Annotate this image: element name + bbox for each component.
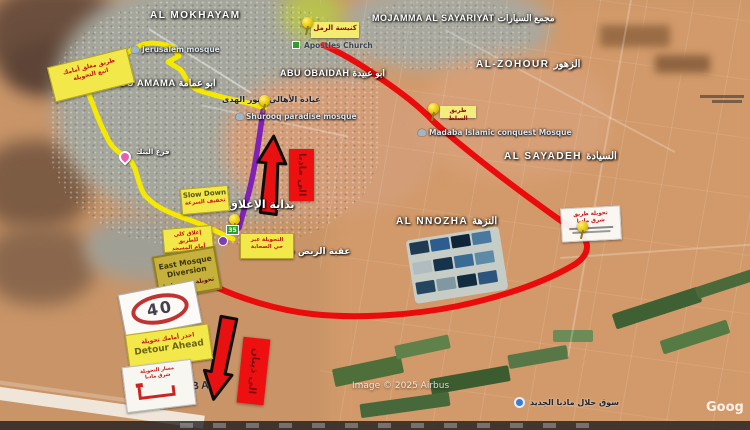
satellite-map-canvas[interactable]: AL MOKHAYAM MOJAMMA AL SAYARIYAT مجمع ال… <box>0 0 750 430</box>
church-pin[interactable] <box>302 17 313 28</box>
place-label-mokhayam: AL MOKHAYAM <box>150 10 241 21</box>
illegible-text-bar <box>700 95 744 98</box>
sign-notice-white: تحويلة طريق شرق مادبا <box>560 205 622 242</box>
illegible-text-bar <box>712 100 742 103</box>
poi-conquest-mosque[interactable]: Madaba Islamic conquest Mosque <box>429 128 572 137</box>
dark-patch <box>655 55 710 73</box>
status-bar-text-blur <box>180 423 600 428</box>
sign-diversion-diagram: مسار التحويلة شرق مادبا <box>121 359 196 413</box>
place-label-nnozha: AL NNOZHA النزهة <box>396 216 497 227</box>
annotation-clinic: عيادة الأهالي / نور الهدى <box>222 95 321 104</box>
place-label-zohour: AL-ZOHOUR الزهور <box>476 59 580 70</box>
sign-via-sahaba: التحويلة عبر حي الصحابة <box>240 233 294 259</box>
mosque-icon[interactable] <box>418 129 426 136</box>
speed-limit-ring: 40 <box>129 289 192 330</box>
google-watermark: Goog <box>706 400 744 415</box>
imagery-credit: Image © 2025 Airbus <box>352 381 449 391</box>
annotation-bank: فرع البنك <box>136 148 169 156</box>
sign-church-label: كنيسة الرمل <box>311 22 359 38</box>
annotation-closure-start: بداية الإغلاق <box>228 198 295 211</box>
conquest-mosque-pin[interactable] <box>428 103 439 114</box>
place-label-mojamma: MOJAMMA AL SAYARIYAT مجمع السيارات <box>372 13 555 24</box>
dark-patch <box>600 25 670 47</box>
market-icon[interactable] <box>514 397 525 408</box>
poi-shurooq-mosque[interactable]: Shurooq paradise mosque <box>246 112 357 121</box>
closure-end-pin[interactable] <box>229 214 240 225</box>
sign-slow-down: Slow Down تخفيف السرعة <box>180 185 230 215</box>
church-icon[interactable] <box>292 41 300 49</box>
poi-jerusalem-mosque[interactable]: Jerusalem mosque <box>142 45 220 54</box>
sign-salt-road: طريق السلط <box>440 106 476 118</box>
poi-market[interactable]: سوق حلال مادبا الجديد <box>530 398 619 407</box>
status-bar <box>0 421 750 430</box>
badge-35[interactable]: 35 <box>226 225 239 235</box>
farms-left-2 <box>0 225 95 305</box>
camera-marker[interactable] <box>218 236 228 246</box>
mosque-icon[interactable] <box>236 113 244 120</box>
direction-box-to-dhiban: الى ذيبان <box>237 337 271 405</box>
direction-box-to-madaba: الى مادبا <box>289 149 314 201</box>
diagram-route-sketch <box>134 377 184 405</box>
place-label-abu-obaidah: ABU OBAIDAH ابو عبيدة <box>280 68 385 79</box>
mosque-icon[interactable] <box>131 46 139 53</box>
east-junction-pin[interactable] <box>577 221 588 232</box>
poi-apostles-church[interactable]: Apostles Church <box>304 41 373 50</box>
place-label-sayadeh: AL SAYADEH السيادة <box>504 151 617 162</box>
route-pin[interactable] <box>259 95 270 106</box>
